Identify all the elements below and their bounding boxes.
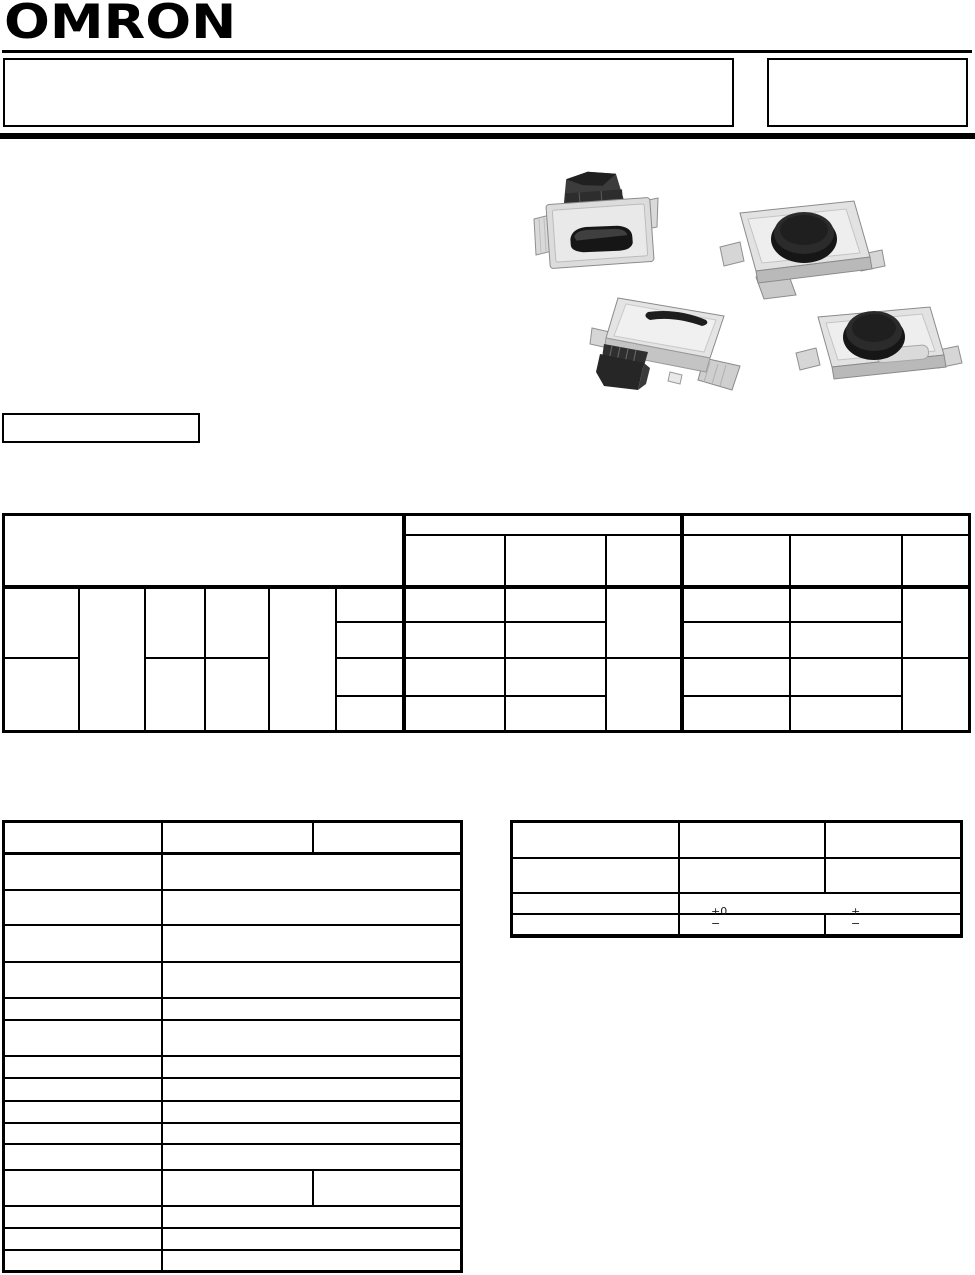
header-black-bar — [0, 133, 975, 139]
tolerance-right-bottom: − — [851, 917, 860, 930]
packing-table — [510, 820, 963, 938]
packing-table-grid — [510, 820, 963, 938]
switch-photo-side-type-front — [534, 168, 658, 269]
product-photos — [495, 165, 965, 405]
tolerance-left-bottom: − — [711, 917, 720, 930]
omron-logo: OMRON — [4, 0, 236, 44]
header-top-rule — [2, 50, 972, 53]
characteristics-table-grid — [2, 820, 463, 1273]
tolerance-value-right: +− — [851, 906, 860, 929]
title-box — [3, 58, 734, 127]
characteristics-table — [2, 820, 463, 1273]
switch-photo-round-button-terminal — [720, 201, 885, 299]
datasheet-page: { "brand": { "logo_text": "OMRON" }, "ta… — [0, 0, 975, 1275]
selection-table — [2, 513, 971, 733]
switch-photo-round-button — [796, 307, 962, 379]
ordering-info-heading-box — [2, 413, 200, 443]
selection-table-grid — [2, 513, 971, 733]
tolerance-value-left: +0− — [711, 906, 727, 929]
switch-photo-side-type-top — [590, 298, 740, 390]
doc-number-box — [767, 58, 968, 127]
